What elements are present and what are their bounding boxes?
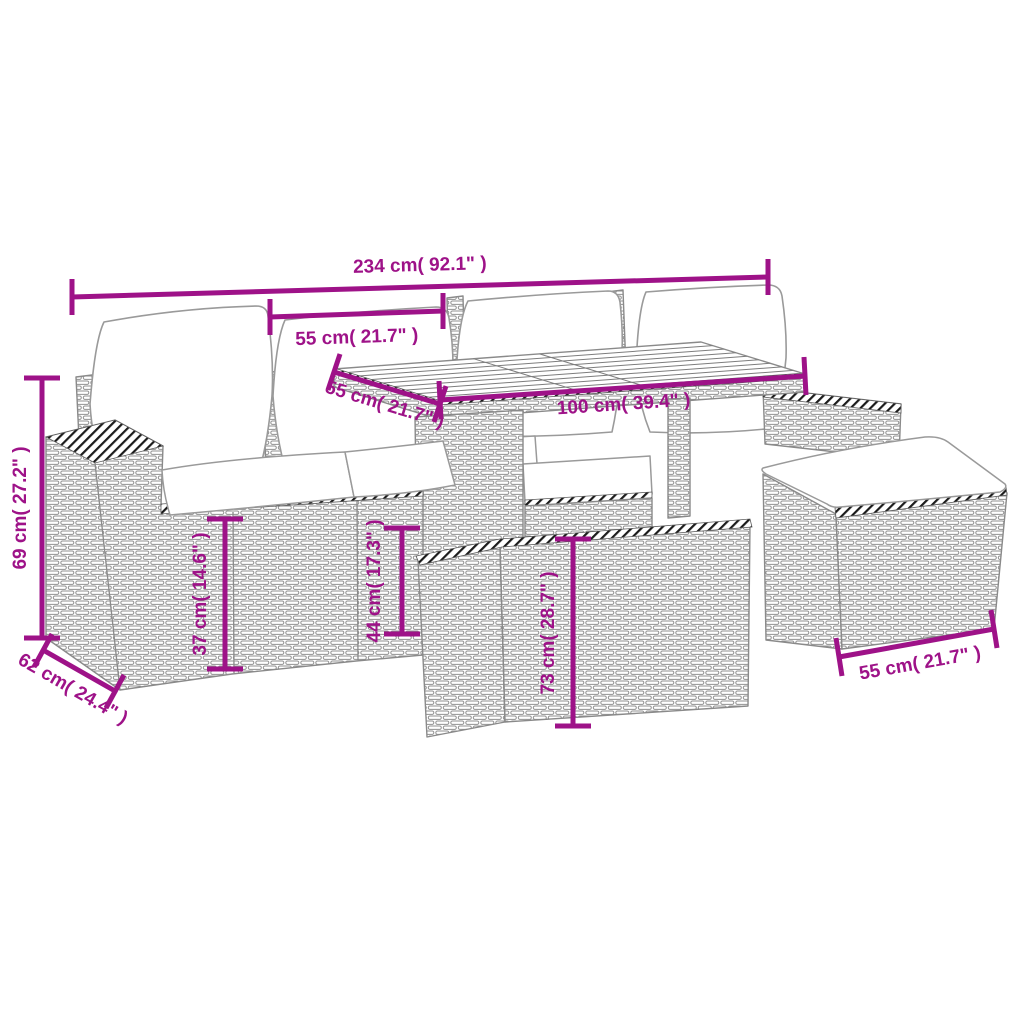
dim-seat-height-label: 37 cm( 14.6" ) [190,532,211,655]
footstool [762,437,1007,649]
product-dimension-diagram: 234 cm( 92.1" ) 55 cm( 21.7" ) 69 cm( 27… [0,0,1024,1024]
dim-seat-width-label: 55 cm( 21.7" ) [295,325,419,350]
dim-back-height-label: 69 cm( 27.2" ) [10,446,31,569]
dim-total-width-label: 234 cm( 92.1" ) [353,253,487,278]
dim-table-height-label: 73 cm( 28.7" ) [538,571,559,694]
dim-section-height-label: 44 cm( 17.3" ) [364,519,385,642]
table-leg-right [668,398,690,518]
cube-left-face [418,545,505,737]
footstool-front-face [836,493,1007,649]
left-sofa [46,420,455,690]
furniture-diagram-canvas: 234 cm( 92.1" ) 55 cm( 21.7" ) 69 cm( 27… [0,0,1024,1024]
storage-cube [416,519,752,737]
